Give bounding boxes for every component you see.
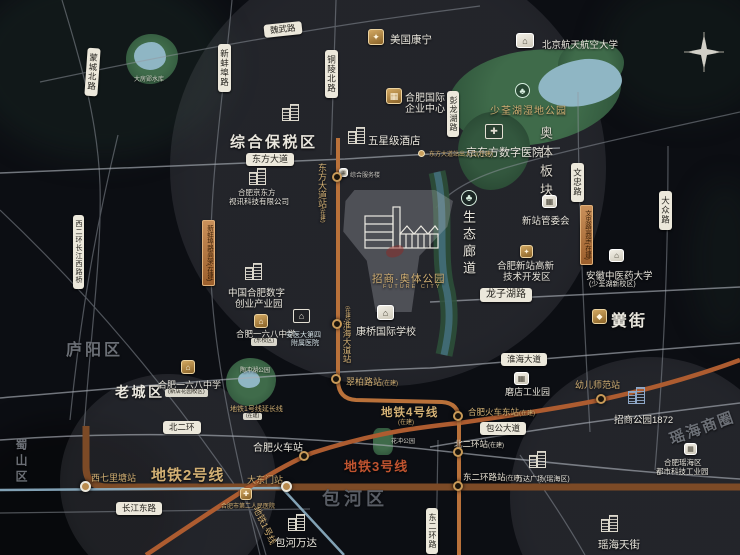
poi-qiye-line2: 企业中心 — [405, 100, 445, 115]
station-label-hefei-east: 合肥火车东站(在建) — [468, 406, 535, 418]
viaduct-xinbengbu: 新蚌埠路高架(在建) — [202, 220, 215, 286]
poi-school168-xindian-campus: (新店花园校区) — [165, 389, 208, 397]
station-marker-dongerhuan — [453, 481, 463, 491]
station-label-dongerhuan: 东二环路站(在建) — [463, 471, 522, 483]
station-label-cuibai: 翠柏路站(在建) — [346, 375, 398, 388]
boe-hospital-icon: ✚ — [485, 124, 503, 139]
station-dongfang-name: 东方大道站 — [317, 163, 327, 208]
station-label-huaihai: (在建)淮海大道站 — [341, 306, 353, 363]
poi-modian: 磨店工业园 — [505, 385, 550, 398]
district-luyang: 庐阳区 — [66, 336, 123, 360]
location-map: ✦ 美国康宁 魏武路 蒙城北路 大房郢水库 新蚌埠路 铜陵北路 ⌂ 北京航天航空… — [0, 0, 740, 555]
poi-kangqiao: 康桥国际学校 — [356, 323, 416, 338]
park-label-taochonghu: 陶冲湖公园 — [240, 365, 270, 374]
road-longzihu — [430, 287, 740, 302]
road-arc-southeast — [436, 112, 740, 208]
bonded-zone-buildings-icon — [282, 103, 298, 121]
zhongyiyao-icon: ⌂ — [609, 249, 624, 262]
poi-park1872: 招商公园1872 — [614, 412, 673, 426]
station-huaihai-name: 淮海大道站 — [342, 321, 352, 364]
poi-guanweihui: 新站管委会 — [522, 213, 570, 227]
station-hefei-east-status: (在建) — [519, 411, 535, 417]
poi-digital-park-line2: 创业产业园 — [235, 296, 283, 310]
metro-line3-label: 地铁3号线 — [344, 456, 408, 475]
digital-park-buildings-icon — [245, 262, 261, 280]
station-marker-xiqilitang — [80, 481, 91, 492]
viaduct-wenzhong: 文忠路高架(在建) — [580, 205, 593, 265]
hospital2-icon: ✚ — [240, 488, 252, 500]
road-label-dongerhuanlu: 东二环路 — [426, 508, 438, 554]
road-label-dongfang-dadao: 东方大道 — [246, 153, 294, 166]
road-label-tonglingbei: 铜陵北路 — [325, 50, 338, 98]
road-label-huaihai: 淮海大道 — [501, 353, 547, 366]
station-huaihai-status: (在建) — [344, 306, 350, 321]
station-dongerhuan-name: 东二环路站 — [463, 472, 506, 482]
anyida-hospital-icon: ⌂ — [293, 309, 310, 323]
park-label-huachong: 花冲公园 — [391, 436, 415, 445]
modian-icon: ▦ — [514, 372, 529, 385]
road-label-beierhuan: 北二环 — [163, 421, 201, 434]
poi-wanda-yaohai: 万达广场(瑶海区) — [516, 474, 570, 484]
poi-hospital2: 合肥市第二人民医院 — [221, 501, 275, 510]
poi-beihang: 北京航天航空大学 — [542, 37, 618, 51]
station-marker-dadongmen — [281, 481, 292, 492]
park-label-shaoquanhu: 少荃湖湿地公园 — [490, 102, 567, 117]
road-label-baogong: 包公大道 — [480, 422, 526, 435]
metro-line4-status: (在建) — [398, 417, 414, 426]
road-bottom-right-diag — [520, 455, 585, 555]
shaoquanhu-tree-icon: ♣ — [515, 83, 530, 98]
district-shushan: 蜀山区 — [13, 438, 30, 486]
poi-hotel: 五星级酒店 — [368, 133, 421, 148]
station-beierhuan-status: (在建) — [488, 443, 504, 449]
line1-ext-name: 地铁1号线延长线 — [230, 406, 283, 413]
boe-vision-buildings-icon — [249, 169, 265, 185]
beihang-icon: ⌂ — [516, 33, 534, 48]
station-label-xiqilitang: 西七里塘站 — [91, 471, 136, 484]
road-label-xinbengbu: 新蚌埠路 — [218, 44, 231, 92]
poi-tianjie: 瑶海天街 — [598, 537, 640, 552]
tianjie-buildings-icon — [601, 512, 617, 532]
project-subtitle: FUTURE CITY — [383, 284, 441, 290]
poi-baohe-wanda: 包河万达 — [275, 535, 317, 550]
poi-anyida-line2: 附属医院 — [291, 338, 319, 348]
station-marker-huaihai — [332, 319, 342, 329]
road-label-xierhuan-bridge: 西二环长江西路桥 — [73, 215, 84, 289]
poi-zhongyiyao-campus: (少荃湖新校区) — [589, 279, 636, 289]
station-marker-cuibai — [331, 374, 341, 384]
line1-ext-status: (在建) — [243, 413, 262, 420]
hotel-buildings-icon — [348, 128, 364, 144]
station-label-dadongmen: 大东门站 — [247, 473, 283, 486]
wanda-yaohai-buildings-icon — [529, 450, 545, 468]
park-label-eco-corridor: 生态廊道 — [459, 210, 478, 278]
area-bonded-zone: 综合保税区 — [230, 131, 318, 152]
area-hongjie: 黉街 — [611, 307, 647, 331]
station-dongfang-status: (在建) — [319, 208, 325, 223]
station-marker-hefei-east — [453, 411, 463, 421]
station-cuibai-name: 翠柏路站 — [346, 377, 382, 387]
school168-east-icon: ⌂ — [254, 314, 268, 328]
station-marker-youershifan — [596, 394, 606, 404]
station-hefei-east-name: 合肥火车东站 — [468, 407, 519, 417]
park-label-dafangying: 大房郢水库 — [134, 74, 164, 83]
road-label-longzihu: 龙子湖路 — [480, 288, 532, 302]
hongjie-icon: ◆ — [592, 309, 607, 324]
compass-icon — [684, 32, 724, 72]
metro-line2-label: 地铁2号线 — [151, 464, 224, 485]
poi-hitech-line2: 技术开发区 — [503, 269, 551, 283]
station-label-youershifan: 幼儿师范站 — [575, 378, 620, 391]
poi-dushi-line2: 都市科技工业园 — [656, 466, 709, 477]
school168-xindian-icon: ⌂ — [181, 360, 195, 374]
dushi-park-icon: ▦ — [684, 443, 697, 455]
road-label-wenzhong: 文忠路 — [571, 163, 584, 202]
district-baohe: 包河区 — [322, 485, 388, 511]
station-label-hefei-rail: 合肥火车站 — [253, 439, 303, 454]
baohe-wanda-buildings-icon — [288, 513, 304, 531]
guanweihui-icon: ▦ — [542, 195, 557, 208]
station-cuibai-status: (在建) — [382, 381, 398, 387]
station-marker-beierhuan — [453, 447, 463, 457]
road-label-dazhong: 大众路 — [659, 191, 672, 230]
poi-school168-east-campus: (东校区) — [251, 338, 277, 346]
poi-boe-vision-line2: 视讯科技有限公司 — [229, 196, 289, 207]
poi-service-bldg: 综合服务楼 — [350, 170, 380, 179]
district-aoti-block: 奥体板块 — [536, 126, 555, 202]
road-label-changjiangdong: 长江东路 — [116, 502, 162, 515]
road-label-penglonghu: 彭龙湖路 — [447, 91, 459, 137]
qiye-center-icon: ▦ — [386, 88, 402, 104]
eco-corridor-tree-icon: ♣ — [461, 190, 477, 206]
station-marker-hefei-rail — [299, 451, 309, 461]
station-dongfang-entrance: 东方大道站出入口(在建) — [429, 149, 493, 158]
corning-icon: ✦ — [368, 29, 384, 45]
poi-corning: 美国康宁 — [390, 32, 432, 47]
hitech-zone-icon: ✦ — [520, 245, 533, 258]
park1872-buildings-icon — [628, 386, 644, 404]
metro-line3 — [146, 360, 740, 555]
station-marker-dongfang — [332, 172, 342, 182]
station-dongfang-entrance-dot — [418, 150, 425, 157]
kangqiao-school-icon: ⌂ — [377, 305, 394, 320]
station-label-dongfang: 东方大道站(在建) — [316, 163, 329, 223]
